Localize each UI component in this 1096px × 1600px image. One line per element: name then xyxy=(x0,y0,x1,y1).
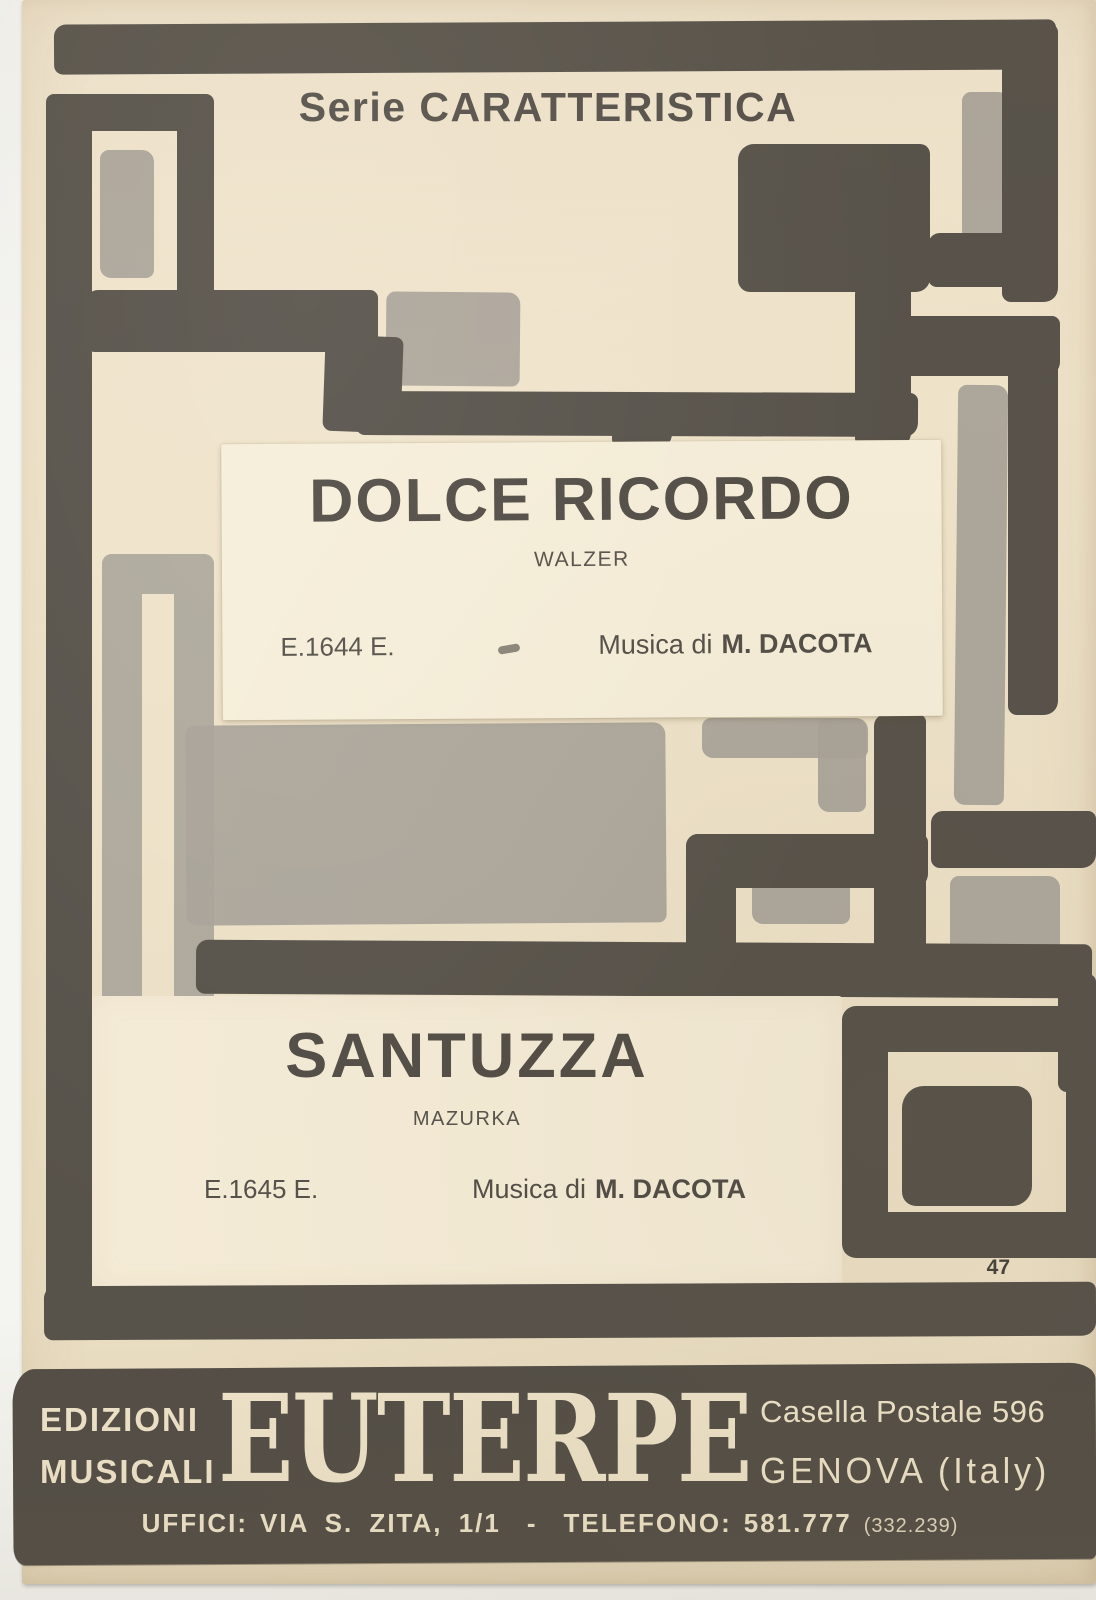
catalog-row: E.1645 E. Musica diM. DACOTA xyxy=(92,1174,842,1205)
offices-separator: - xyxy=(527,1508,538,1538)
composer-credit: Musica diM. DACOTA xyxy=(472,1174,746,1205)
grey-accent xyxy=(954,385,1008,806)
piece-title: DOLCE RICORDO xyxy=(221,462,941,536)
maze-stroke xyxy=(196,940,1092,999)
piece-title: SANTUZZA xyxy=(92,1020,842,1092)
maze-stroke xyxy=(931,811,1096,868)
maze-stroke xyxy=(902,1086,1032,1206)
credit-prefix: Musica di xyxy=(598,629,712,660)
piece-subtitle: MAZURKA xyxy=(92,1108,842,1131)
maze-stroke xyxy=(46,96,92,1338)
composer-name: M. DACOTA xyxy=(721,628,872,659)
catalog-row: E.1644 E. Musica diM. DACOTA xyxy=(222,628,942,663)
catalog-number: E.1644 E. xyxy=(280,631,394,663)
catalog-number: E.1645 E. xyxy=(204,1174,318,1205)
piece-subtitle: WALZER xyxy=(222,546,942,574)
page-number: 47 xyxy=(938,1256,1010,1280)
maze-stroke xyxy=(44,1282,1096,1341)
grey-accent xyxy=(818,718,866,812)
maze-stroke xyxy=(54,19,1056,74)
maze-stroke xyxy=(928,233,1058,287)
sheet-music-cover: DOLCE RICORDO WALZER E.1644 E. Musica di… xyxy=(0,0,1096,1600)
publisher-offices-line: UFFICI:VIA S. ZITA, 1/1-TELEFONO:581.777… xyxy=(80,1508,1020,1539)
phone-number: 581.777 xyxy=(744,1508,852,1538)
grey-accent xyxy=(185,722,666,925)
phone-label: TELEFONO: xyxy=(564,1508,732,1538)
publisher-brand: EUTERPE xyxy=(218,1378,751,1499)
offices-label: UFFICI: xyxy=(142,1508,248,1538)
publisher-name-line1: EDIZIONI xyxy=(40,1401,199,1439)
credit-prefix: Musica di xyxy=(472,1174,586,1204)
composer-name: M. DACOTA xyxy=(595,1174,746,1204)
publisher-address-line1: Casella Postale 596 xyxy=(760,1394,1045,1430)
series-title: Serie CARATTERISTICA xyxy=(0,84,1096,131)
title-panel-dolce-ricordo: DOLCE RICORDO WALZER E.1644 E. Musica di… xyxy=(221,440,943,720)
phone-alt-number: (332.239) xyxy=(864,1515,959,1537)
publisher-name-line2: MUSICALI xyxy=(40,1453,216,1491)
title-panel-santuzza: SANTUZZA MAZURKA E.1645 E. Musica diM. D… xyxy=(92,996,842,1288)
grey-accent xyxy=(386,291,521,386)
composer-credit: Musica diM. DACOTA xyxy=(598,628,872,661)
offices-address: VIA S. ZITA, 1/1 xyxy=(260,1508,501,1538)
maze-stroke xyxy=(738,144,930,292)
maze-stroke xyxy=(1008,320,1058,715)
publisher-address-line2: GENOVA (Italy) xyxy=(760,1450,1050,1492)
maze-stroke xyxy=(855,282,911,447)
